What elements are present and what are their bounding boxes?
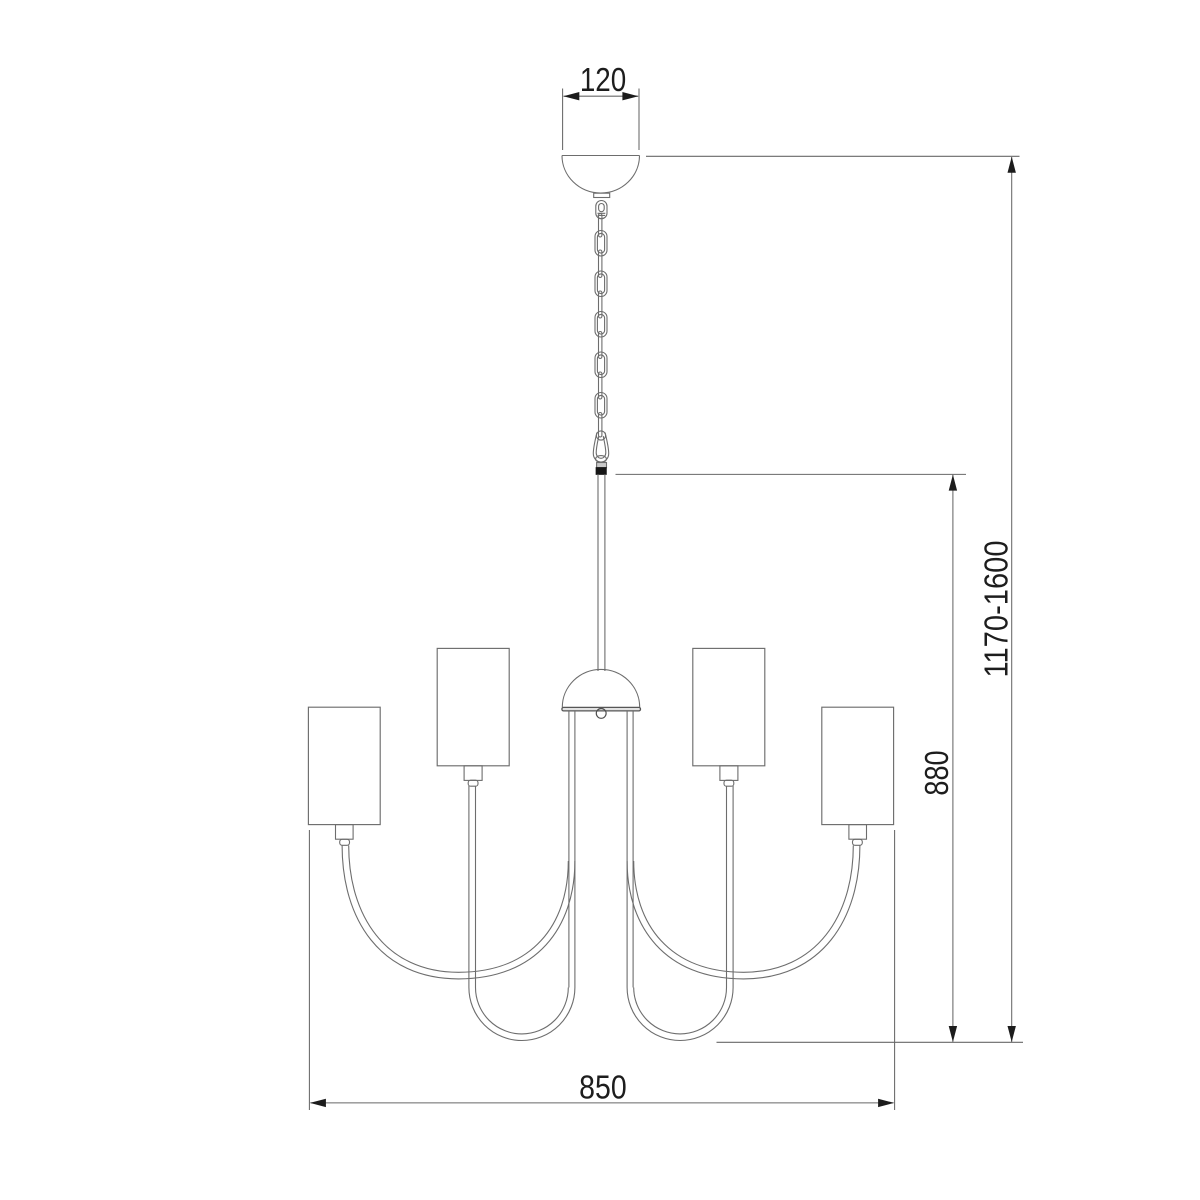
svg-text:850: 850 — [579, 1068, 626, 1106]
svg-text:120: 120 — [580, 60, 626, 98]
svg-text:880: 880 — [918, 750, 955, 795]
svg-text:1170-1600: 1170-1600 — [978, 540, 1015, 677]
